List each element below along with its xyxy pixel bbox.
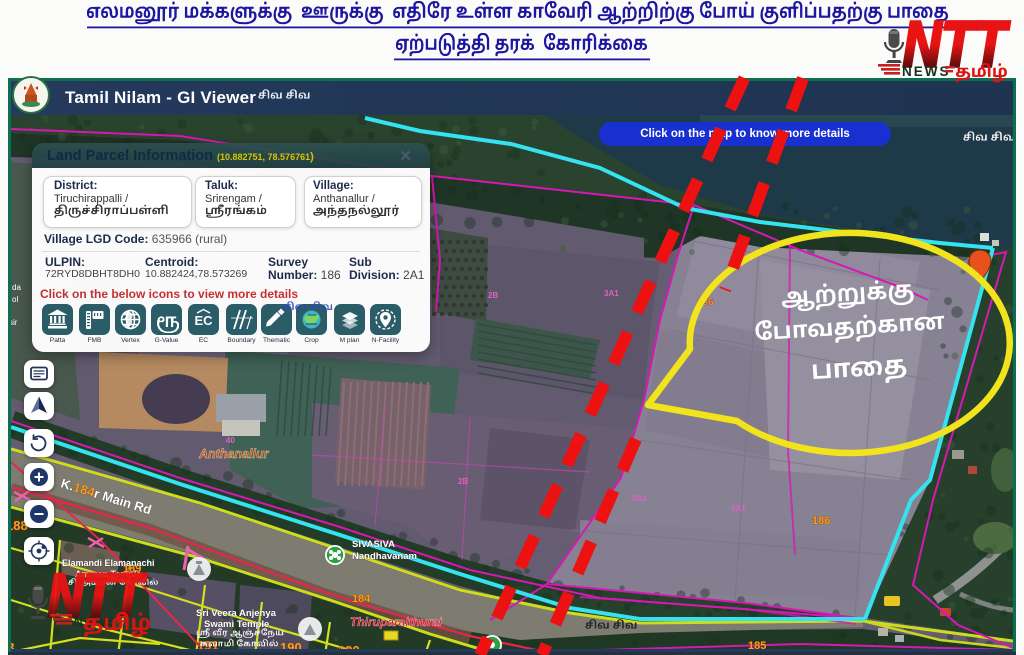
svg-text:Thematic: Thematic [263, 337, 291, 344]
svg-text:N-Facility: N-Facility [372, 337, 400, 344]
svg-text:Crop: Crop [304, 337, 319, 344]
svg-text:NEWS: NEWS [902, 64, 951, 79]
svg-text:Boundary: Boundary [227, 337, 256, 344]
svg-text:EC: EC [199, 337, 208, 344]
svg-text:Vertex: Vertex [121, 337, 140, 344]
svg-text:FMB: FMB [88, 337, 103, 344]
svg-text:EC: EC [194, 313, 213, 328]
svg-text:NEWS: NEWS [74, 615, 118, 629]
svg-text:M plan: M plan [340, 337, 360, 344]
svg-text:G-Value: G-Value [155, 337, 179, 344]
